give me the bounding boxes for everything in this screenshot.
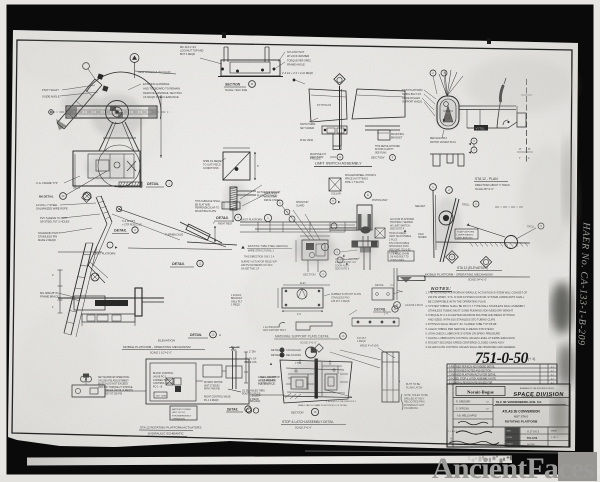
svg-text:AncientFaces: AncientFaces	[432, 452, 594, 482]
